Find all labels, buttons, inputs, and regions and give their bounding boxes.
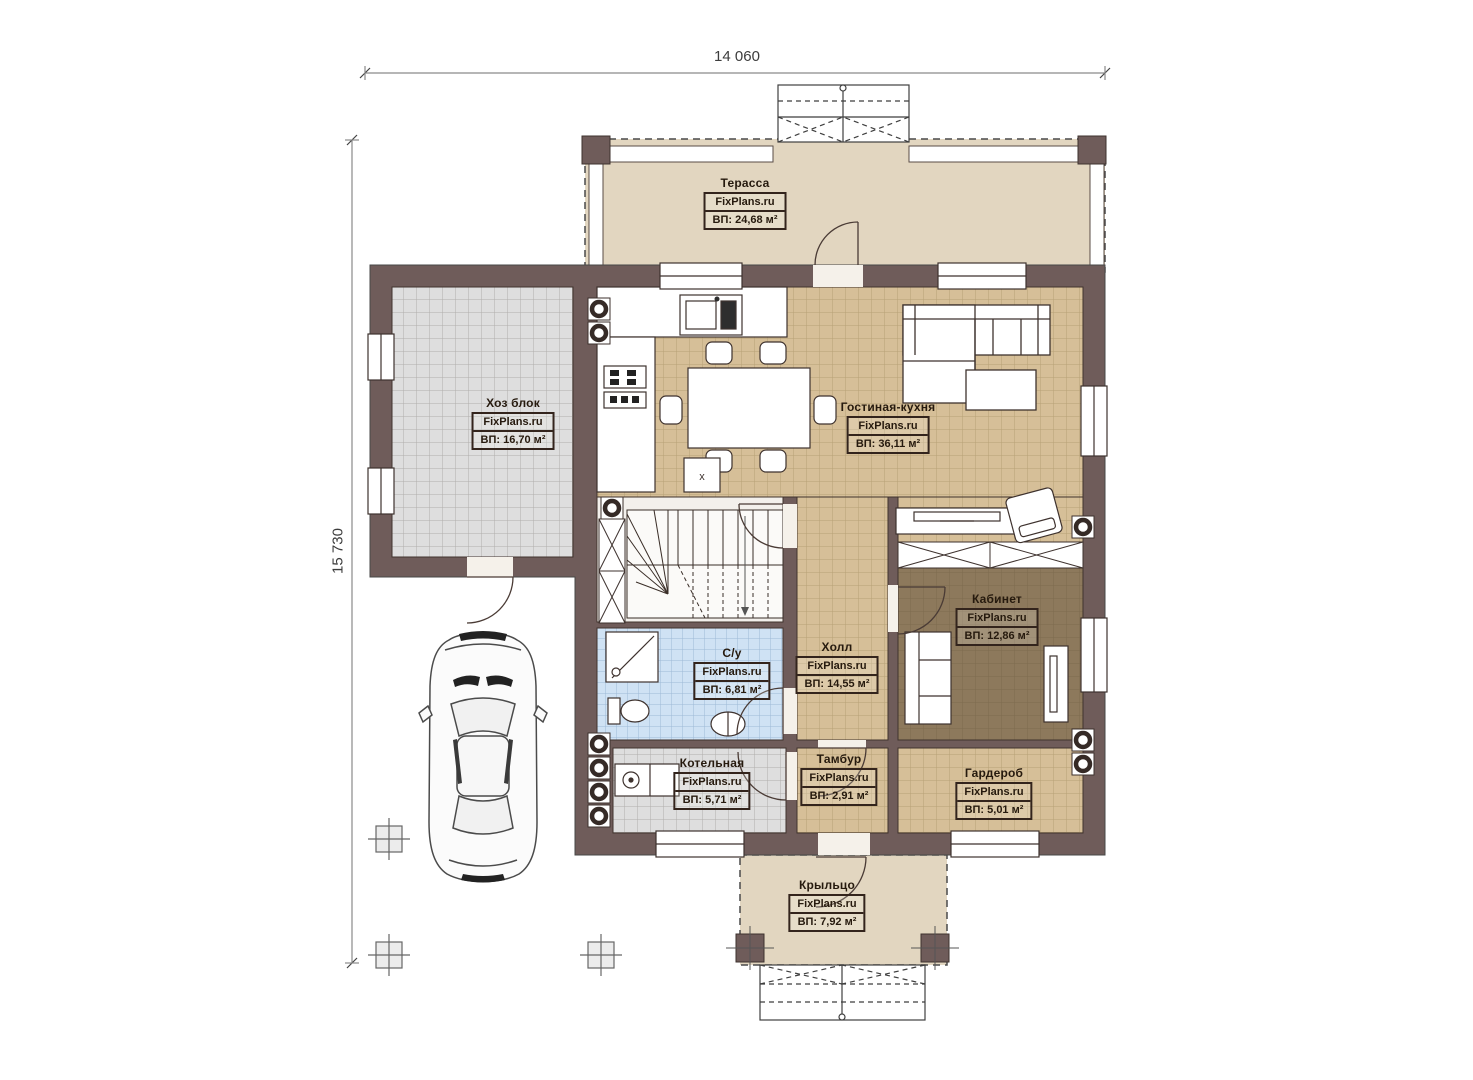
chair <box>814 396 836 424</box>
office-sofa <box>905 632 951 724</box>
room-area: ВП: 2,91 м² <box>802 788 875 804</box>
watermark: FixPlans.ru <box>798 658 877 676</box>
room-area: ВП: 5,71 м² <box>675 792 748 808</box>
room-area: ВП: 16,70 м² <box>474 432 553 448</box>
office-closet <box>898 542 1083 568</box>
chair <box>760 450 786 472</box>
room-label-living-kitchen: Гостиная-кухня FixPlans.ru ВП: 36,11 м² <box>841 400 936 454</box>
window <box>938 263 1026 289</box>
room-name: С/у <box>693 646 770 660</box>
coffee-table <box>966 370 1036 410</box>
room-name: Гардероб <box>955 766 1032 780</box>
boiler-unit <box>615 764 679 796</box>
tv-console <box>896 508 1020 534</box>
window <box>368 468 394 514</box>
watermark: FixPlans.ru <box>695 664 768 682</box>
dimension-width-label: 14 060 <box>714 48 760 65</box>
chair <box>706 342 732 364</box>
room-label-office: Кабинет FixPlans.ru ВП: 12,86 м² <box>956 592 1039 646</box>
window <box>656 831 744 857</box>
room-label-bathroom: С/у FixPlans.ru ВП: 6,81 м² <box>693 646 770 700</box>
sink-pedestal-icon <box>711 712 745 736</box>
room-name: Гостиная-кухня <box>841 400 936 414</box>
window <box>1081 386 1107 456</box>
terrace-steps <box>778 85 909 142</box>
watermark: FixPlans.ru <box>957 784 1030 802</box>
room-label-wardrobe: Гардероб FixPlans.ru ВП: 5,01 м² <box>955 766 1032 820</box>
floor-plan-drawing: x <box>0 0 1473 1080</box>
chair <box>760 342 786 364</box>
room-area: ВП: 12,86 м² <box>958 628 1037 644</box>
room-area: ВП: 6,81 м² <box>695 682 768 698</box>
window <box>660 263 742 289</box>
room-label-porch: Крыльцо FixPlans.ru ВП: 7,92 м² <box>788 878 865 932</box>
watermark: FixPlans.ru <box>706 194 785 212</box>
room-label-hall: Холл FixPlans.ru ВП: 14,55 м² <box>796 640 879 694</box>
room-label-utility: Хоз блок FixPlans.ru ВП: 16,70 м² <box>472 396 555 450</box>
floor-hall <box>797 497 888 740</box>
vent-shaft <box>599 519 625 623</box>
porch-steps <box>760 965 925 1020</box>
office-desk <box>1044 646 1068 722</box>
kitchen-vent-box: x <box>684 458 720 492</box>
dining-table <box>688 368 810 448</box>
watermark: FixPlans.ru <box>790 896 863 914</box>
room-name: Хоз блок <box>472 396 555 410</box>
toilet-icon <box>608 698 649 724</box>
watermark: FixPlans.ru <box>474 414 553 432</box>
watermark: FixPlans.ru <box>958 610 1037 628</box>
watermark: FixPlans.ru <box>849 418 927 436</box>
sink-icon <box>680 295 742 335</box>
window <box>368 334 394 380</box>
room-area: ВП: 24,68 м² <box>706 212 785 228</box>
door-utility <box>467 577 513 623</box>
room-label-boiler: Котельная FixPlans.ru ВП: 5,71 м² <box>673 756 750 810</box>
terrace-area <box>582 136 1106 272</box>
room-area: ВП: 14,55 м² <box>798 676 877 692</box>
room-name: Кабинет <box>956 592 1039 606</box>
stove-icon <box>604 366 646 408</box>
room-name: Тамбур <box>800 752 877 766</box>
room-name: Холл <box>796 640 879 654</box>
room-area: ВП: 36,11 м² <box>849 436 927 452</box>
window <box>1081 618 1107 692</box>
room-name: Котельная <box>673 756 750 770</box>
room-label-vestibule: Тамбур FixPlans.ru ВП: 2,91 м² <box>800 752 877 806</box>
window <box>951 831 1039 857</box>
svg-text:x: x <box>699 471 705 483</box>
room-label-terrace: Терасса FixPlans.ru ВП: 24,68 м² <box>704 176 787 230</box>
floor-plan-page: x <box>0 0 1473 1080</box>
room-area: ВП: 7,92 м² <box>790 914 863 930</box>
staircase <box>627 510 783 618</box>
room-name: Терасса <box>704 176 787 190</box>
room-name: Крыльцо <box>788 878 865 892</box>
dimension-height-label: 15 730 <box>330 528 347 574</box>
room-area: ВП: 5,01 м² <box>957 802 1030 818</box>
watermark: FixPlans.ru <box>675 774 748 792</box>
chair <box>660 396 682 424</box>
watermark: FixPlans.ru <box>802 770 875 788</box>
car <box>419 631 547 883</box>
shower-icon <box>606 632 658 682</box>
